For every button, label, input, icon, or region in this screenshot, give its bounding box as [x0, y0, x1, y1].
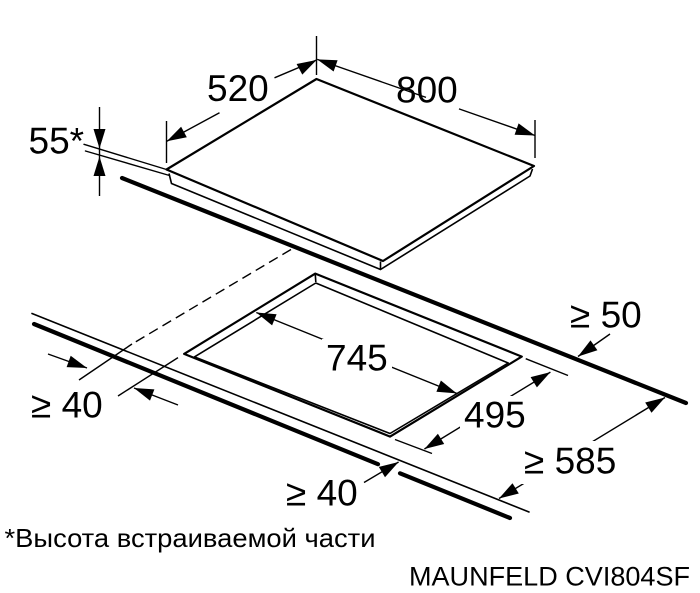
svg-text:800: 800 — [396, 70, 458, 111]
svg-text:520: 520 — [207, 68, 269, 109]
svg-text:MAUNFELD CVI804SF: MAUNFELD CVI804SF — [409, 562, 690, 592]
svg-text:55*: 55* — [29, 121, 85, 162]
svg-text:≥ 50: ≥ 50 — [570, 295, 642, 336]
svg-text:≥ 40: ≥ 40 — [286, 473, 358, 514]
svg-text:*Высота встраиваемой части: *Высота встраиваемой части — [5, 523, 376, 553]
svg-text:≥ 585: ≥ 585 — [524, 441, 616, 482]
svg-text:745: 745 — [326, 338, 388, 379]
svg-text:495: 495 — [464, 395, 526, 436]
svg-text:≥ 40: ≥ 40 — [31, 385, 103, 426]
